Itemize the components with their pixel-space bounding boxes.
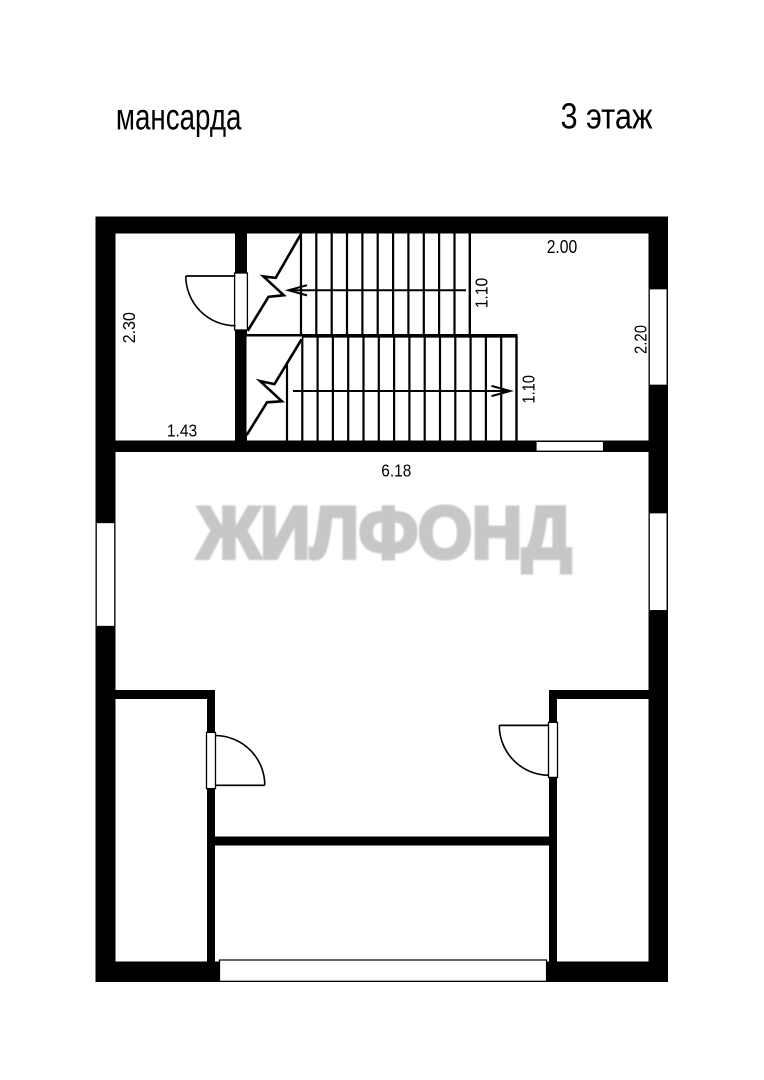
svg-text:1.43: 1.43 — [167, 420, 197, 440]
svg-text:ЖИЛФОНД: ЖИЛФОНД — [197, 493, 572, 574]
svg-text:2.20: 2.20 — [630, 325, 650, 354]
svg-text:1.10: 1.10 — [471, 277, 491, 308]
svg-text:2.30: 2.30 — [119, 312, 139, 343]
svg-text:мансарда: мансарда — [116, 97, 242, 138]
svg-text:1.10: 1.10 — [518, 375, 538, 404]
svg-text:6.18: 6.18 — [381, 461, 411, 481]
svg-text:2.00: 2.00 — [547, 237, 578, 257]
svg-text:3 этаж: 3 этаж — [561, 96, 653, 137]
